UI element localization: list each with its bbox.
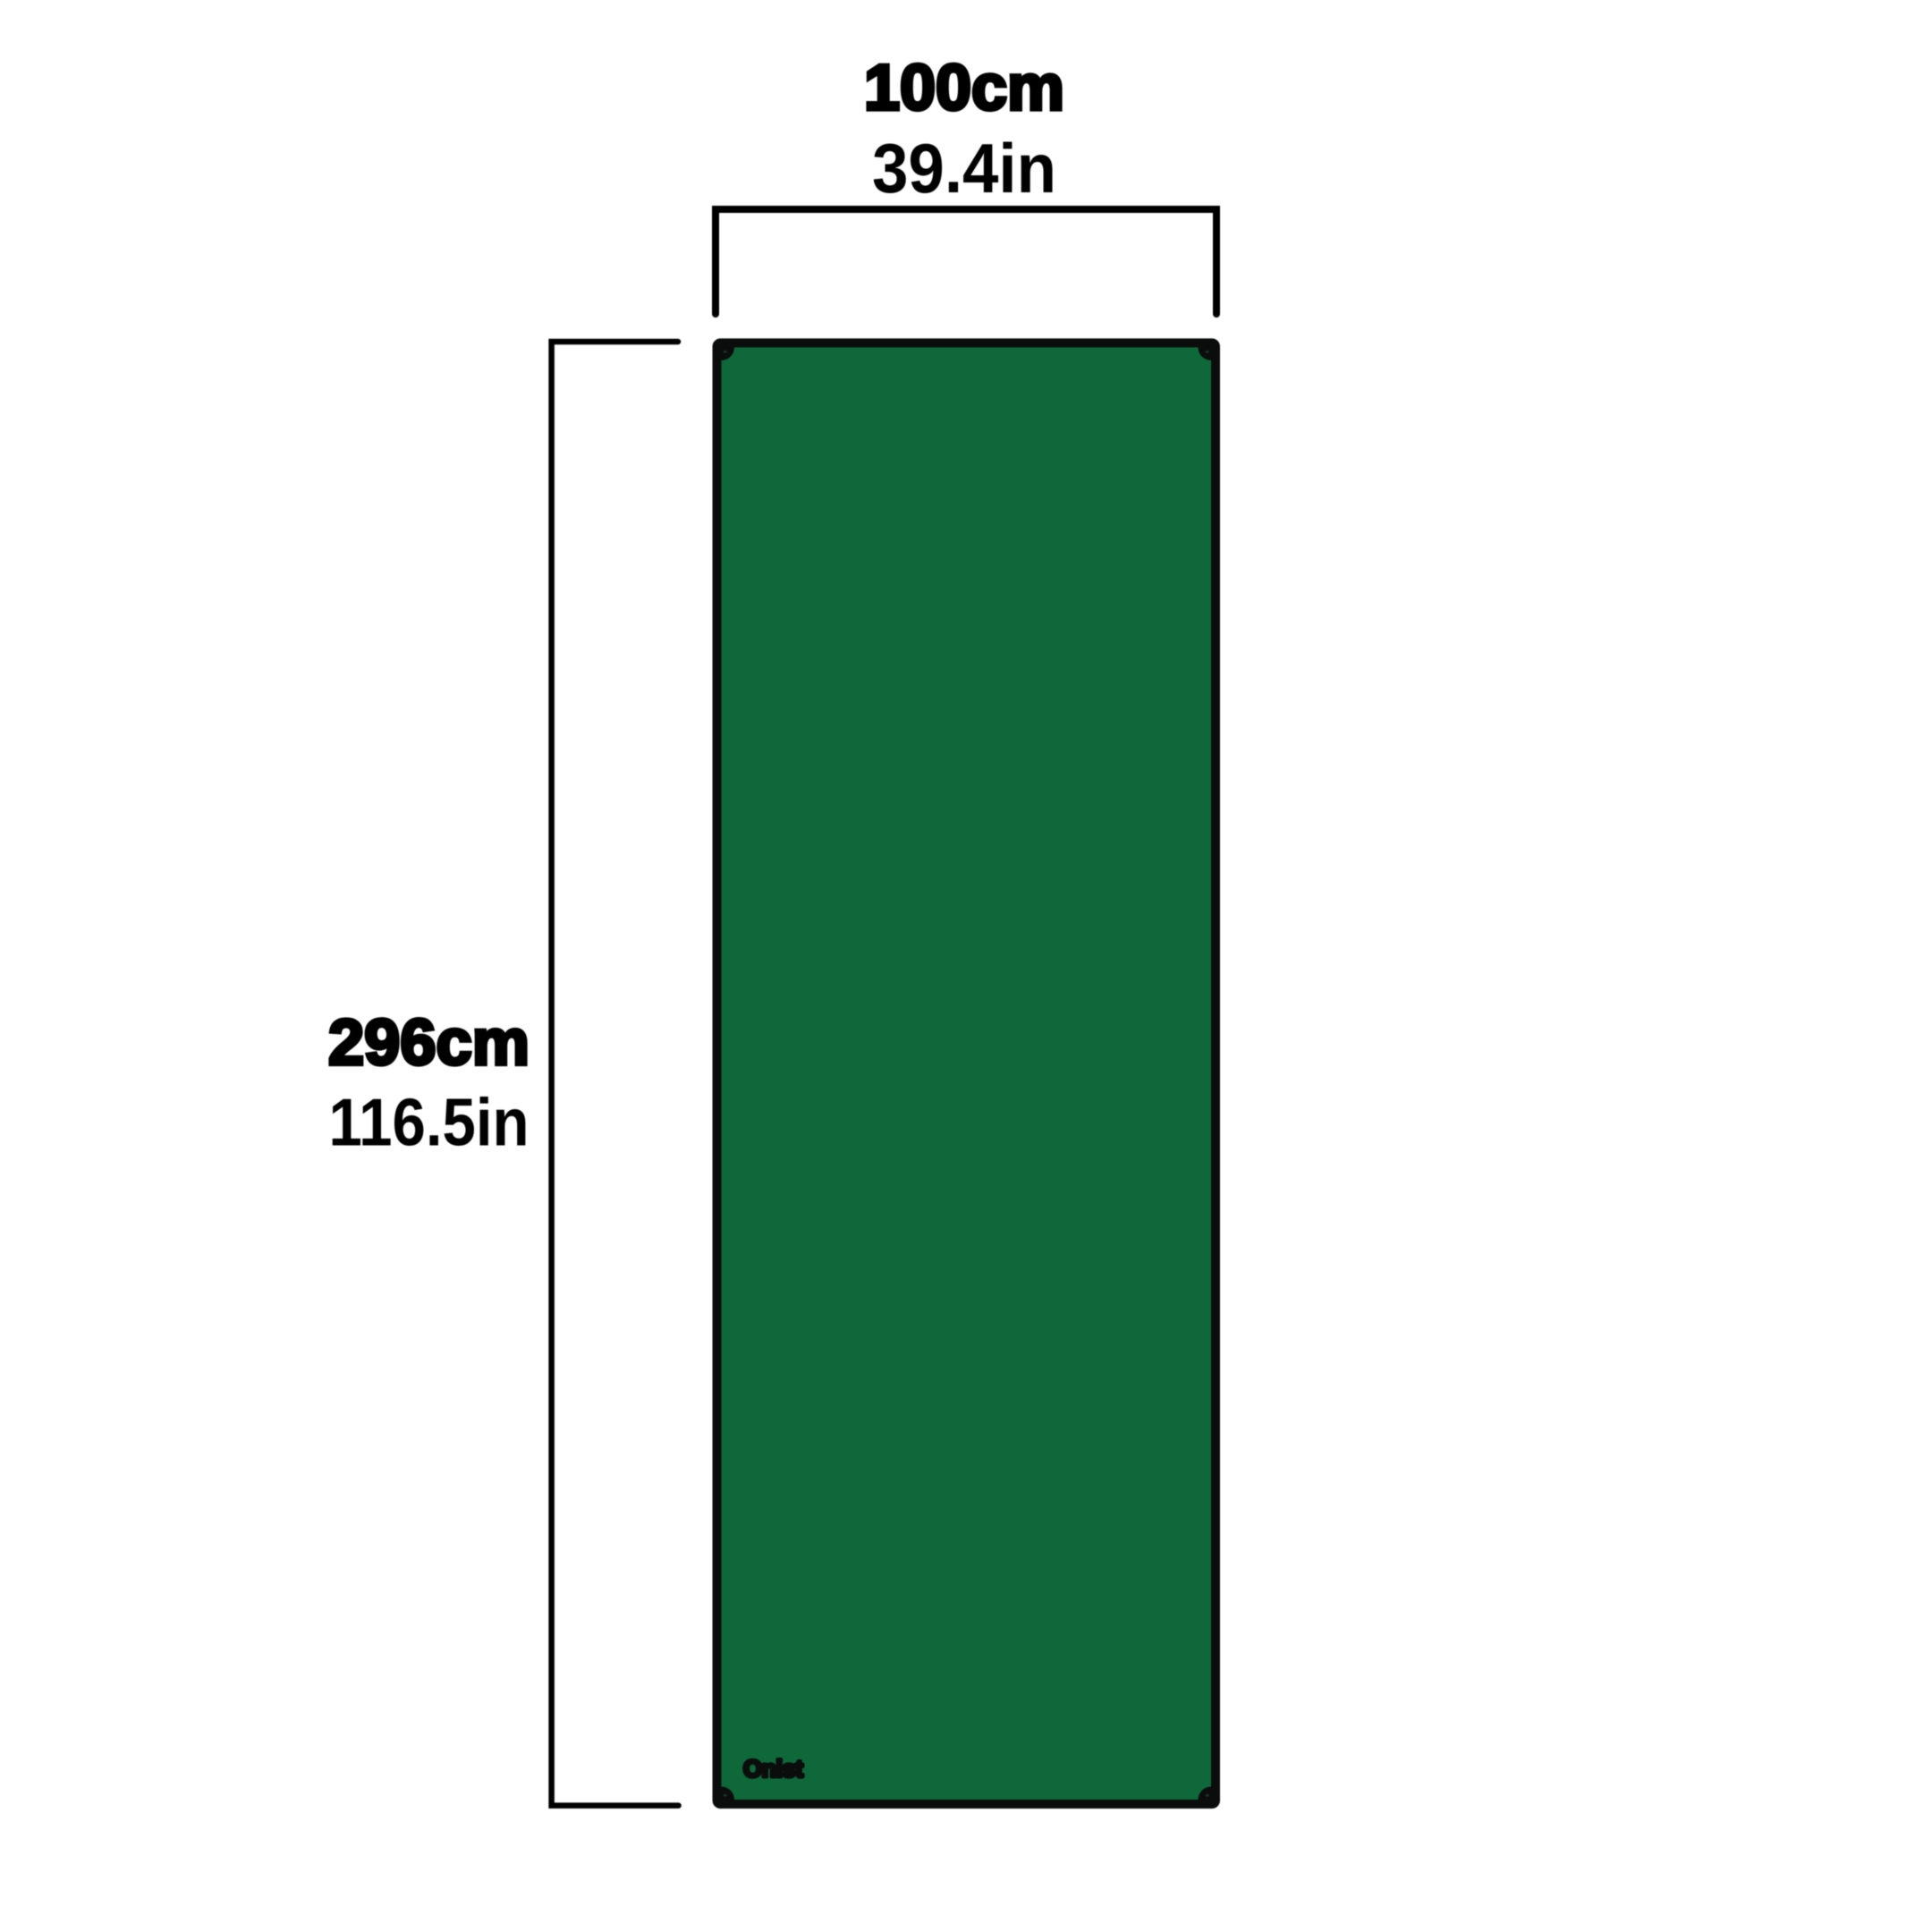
svg-text:Onist: Onist — [743, 1756, 803, 1783]
svg-text:39.4in: 39.4in — [872, 129, 1056, 208]
svg-text:296cm: 296cm — [328, 1007, 530, 1079]
svg-text:100cm: 100cm — [864, 53, 1064, 124]
svg-text:116.5in: 116.5in — [329, 1085, 530, 1160]
